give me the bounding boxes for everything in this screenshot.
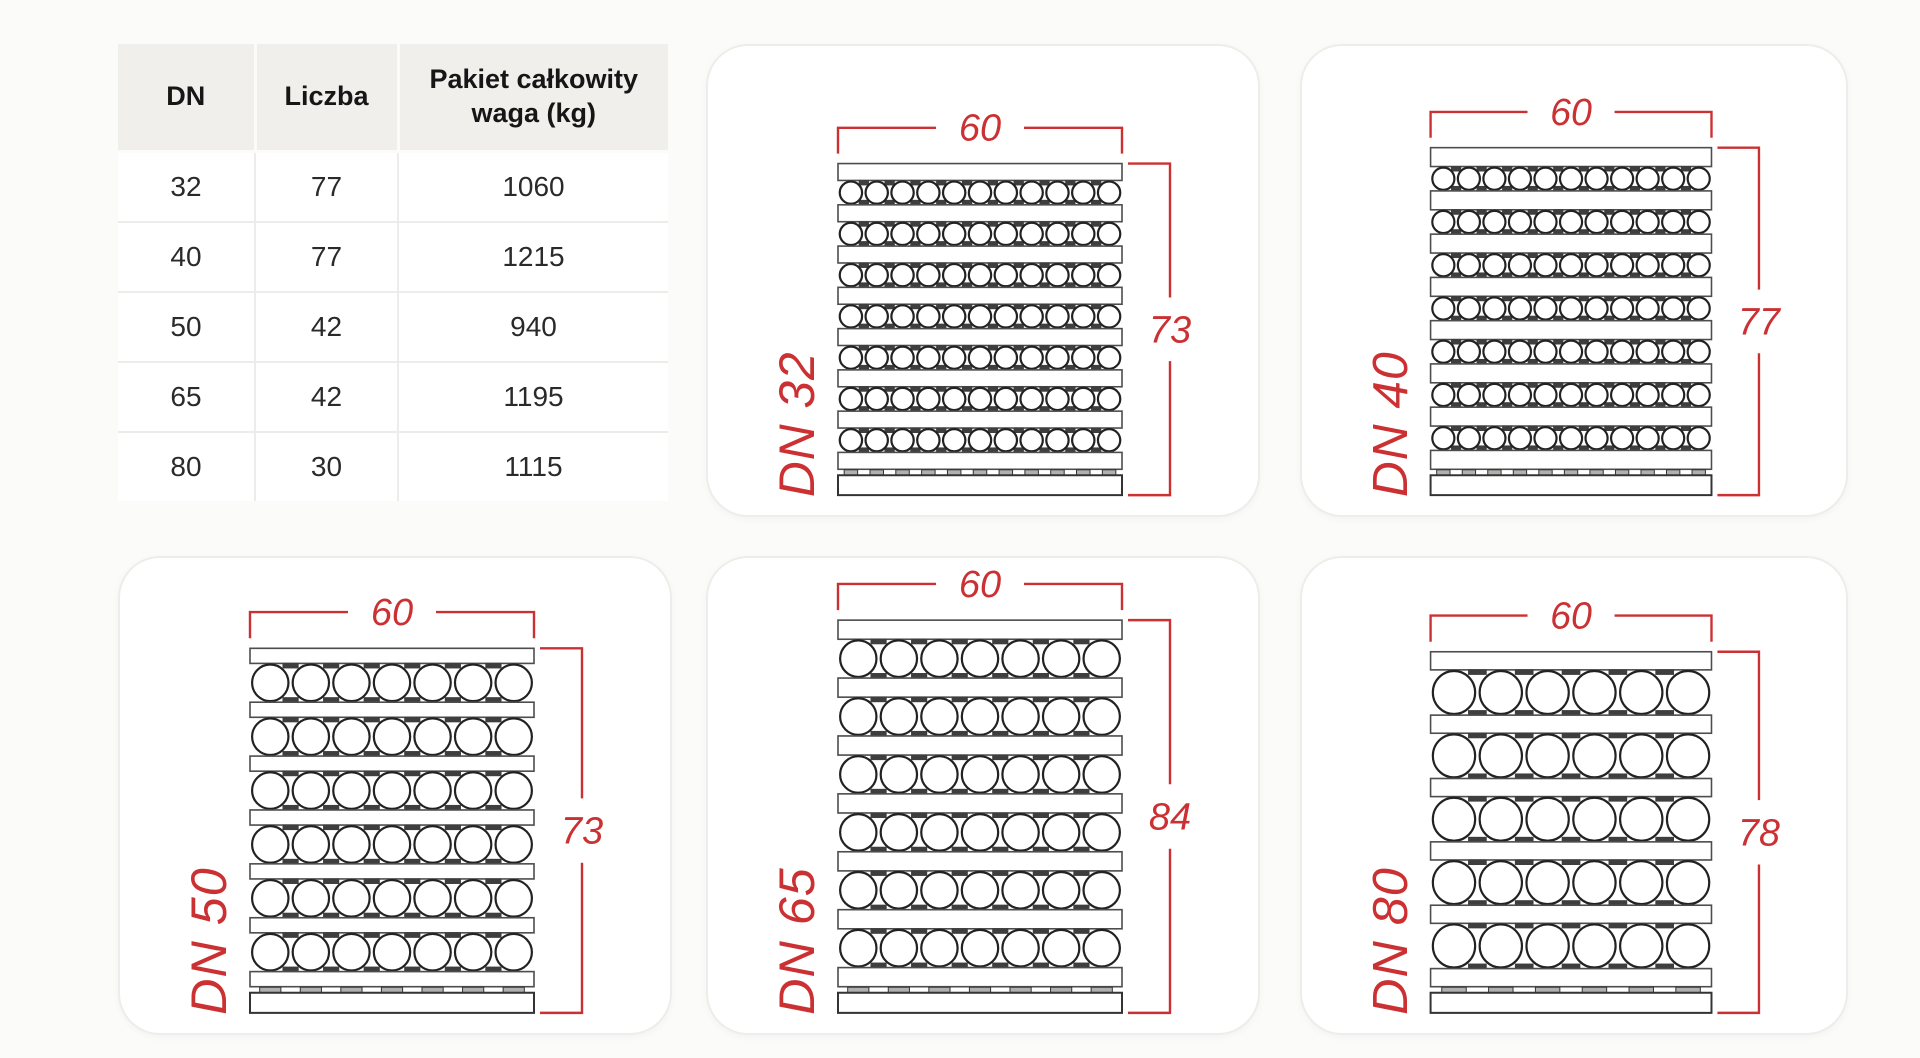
- spacer-tab: [323, 825, 339, 831]
- spacer-tab: [1630, 382, 1640, 387]
- spacer-tab: [1039, 345, 1049, 350]
- height-dimension-value: 77: [1738, 300, 1782, 342]
- spacer-tab: [1091, 304, 1101, 309]
- pipe-circle: [1526, 798, 1568, 841]
- dn-label: DN 80: [1362, 867, 1418, 1015]
- pipe-circle: [1534, 211, 1556, 233]
- pallet-card-dn80: 6078DN 80: [1300, 556, 1848, 1035]
- spacer-tab: [910, 180, 920, 185]
- pipe-circle: [1433, 671, 1475, 714]
- pipe-circle: [866, 347, 888, 369]
- pipe-circle: [1662, 211, 1684, 233]
- pipe-circle: [1534, 254, 1556, 276]
- pipe-circle: [917, 305, 939, 327]
- spacer-tab: [988, 262, 998, 267]
- spacer-tab: [1477, 339, 1487, 344]
- spacer-tab: [404, 878, 420, 884]
- pipe-circle: [1072, 429, 1094, 451]
- spacer-tab: [364, 771, 380, 777]
- plank: [1431, 905, 1712, 923]
- table-row: 32771060: [118, 152, 668, 223]
- plank: [250, 864, 534, 879]
- spacer-tab: [1477, 382, 1487, 387]
- spacer-tab: [1630, 426, 1640, 431]
- plank: [250, 918, 534, 933]
- pipe-circle: [881, 930, 917, 967]
- spacer-tab: [859, 180, 869, 185]
- pipe-circle: [1611, 168, 1633, 190]
- pipe-circle: [840, 756, 876, 793]
- pipe-circle: [374, 880, 410, 917]
- pipe-circle: [1483, 211, 1505, 233]
- pipe-circle: [962, 698, 998, 735]
- pipe-circle: [1458, 427, 1480, 449]
- spacer-tab: [911, 928, 927, 934]
- pipe-circle: [1002, 698, 1038, 735]
- spacer-tab: [1451, 296, 1461, 301]
- pipe-circle: [1002, 930, 1038, 967]
- spacer-tab: [1579, 166, 1589, 171]
- pipe-circle: [962, 756, 998, 793]
- spacer-tab: [1681, 253, 1691, 258]
- spacer-tab: [1468, 923, 1487, 929]
- spacer-tab: [884, 428, 894, 433]
- header-waga: Pakiet całkowity waga (kg): [398, 44, 668, 152]
- spacer-tab: [1073, 928, 1089, 934]
- pipe-circle: [1098, 305, 1120, 327]
- pipe-circle: [455, 772, 491, 809]
- spacer-tab: [1562, 733, 1581, 739]
- pipe-circle: [1586, 297, 1608, 319]
- spacer-tab: [1091, 262, 1101, 267]
- pipe-circle: [1046, 305, 1068, 327]
- pipe-circle: [1084, 756, 1120, 793]
- spacer-tab: [1528, 339, 1538, 344]
- spacer-tab: [323, 771, 339, 777]
- pipe-circle: [1667, 734, 1709, 777]
- spacer-tab: [1502, 253, 1512, 258]
- spacer-tab: [1655, 859, 1674, 865]
- spacer-tab: [1073, 755, 1089, 761]
- spacer-tab: [1065, 180, 1075, 185]
- pipe-circle: [840, 640, 876, 677]
- spacer-tab: [992, 697, 1008, 703]
- spacer-tab: [1562, 669, 1581, 675]
- plank: [838, 329, 1122, 346]
- spacer-tab: [952, 697, 968, 703]
- pipe-circle: [1573, 798, 1615, 841]
- pipe-circle: [917, 264, 939, 286]
- pipe-circle: [1509, 341, 1531, 363]
- spacer-tab: [988, 386, 998, 391]
- pipe-circle: [866, 264, 888, 286]
- pipe-circle: [1534, 427, 1556, 449]
- spacer-tab: [1039, 428, 1049, 433]
- pipe-circle: [414, 718, 450, 755]
- spacer-tab: [1451, 382, 1461, 387]
- pipe-circle: [1480, 924, 1522, 967]
- height-dimension-value: 73: [561, 810, 603, 853]
- cell-waga: 1215: [398, 222, 668, 292]
- pipe-circle: [962, 640, 998, 677]
- pipe-circle: [1534, 297, 1556, 319]
- pipe-circle: [1637, 384, 1659, 406]
- spacer-tab: [1014, 180, 1024, 185]
- spacer-tab: [364, 825, 380, 831]
- pipe-circle: [293, 718, 329, 755]
- spacer-tab: [1609, 669, 1628, 675]
- header-liczba: Liczba: [255, 44, 398, 152]
- pipe-circle: [921, 872, 957, 909]
- plank: [838, 794, 1122, 813]
- pipe-circle: [1620, 861, 1662, 904]
- spacer-tab: [1681, 426, 1691, 431]
- pallet-base-board: [838, 475, 1122, 495]
- spacer-tab: [1579, 382, 1589, 387]
- pipe-circle: [969, 182, 991, 204]
- spacer-tab: [962, 262, 972, 267]
- plank: [1431, 842, 1712, 860]
- spacer-tab: [859, 262, 869, 267]
- spacer-tab: [884, 221, 894, 226]
- spacer-tab: [485, 878, 501, 884]
- pipe-circle: [414, 880, 450, 917]
- pipe-circle: [943, 429, 965, 451]
- spacer-tab: [1579, 426, 1589, 431]
- plank: [250, 756, 534, 771]
- pipe-circle: [1480, 861, 1522, 904]
- pipe-circle: [921, 814, 957, 851]
- spacer-tab: [1655, 426, 1665, 431]
- pipe-circle: [374, 934, 410, 971]
- spacer-tab: [1604, 382, 1614, 387]
- pipe-circle: [891, 429, 913, 451]
- pipe-circle: [840, 264, 862, 286]
- spacer-tab: [1065, 262, 1075, 267]
- pipe-circle: [1688, 168, 1710, 190]
- pipe-circle: [1611, 254, 1633, 276]
- spacer-tab: [1562, 796, 1581, 802]
- pallet-card-dn50: 6073DN 50: [118, 556, 672, 1035]
- cell-liczba: 30: [255, 432, 398, 501]
- spacer-tab: [404, 825, 420, 831]
- table-body: 327710604077121550429406542119580301115: [118, 152, 668, 502]
- cell-liczba: 42: [255, 292, 398, 362]
- pipe-circle: [1586, 384, 1608, 406]
- pipe-circle: [1483, 341, 1505, 363]
- pipe-circle: [921, 756, 957, 793]
- pipe-circle: [943, 264, 965, 286]
- spacer-tab: [910, 428, 920, 433]
- pipe-circle: [995, 347, 1017, 369]
- width-dimension-value: 60: [371, 591, 413, 634]
- plank: [1431, 778, 1712, 796]
- width-dimension-value: 60: [1550, 91, 1592, 133]
- pipe-circle: [1509, 297, 1531, 319]
- pipe-circle: [1020, 305, 1042, 327]
- cell-dn: 50: [118, 292, 255, 362]
- pipe-circle: [1662, 168, 1684, 190]
- pipe-circle: [995, 429, 1017, 451]
- pipe-circle: [333, 718, 369, 755]
- pipe-circle: [1002, 814, 1038, 851]
- spacer-tab: [1630, 296, 1640, 301]
- pipe-circle: [414, 826, 450, 863]
- spacer-tab: [1528, 253, 1538, 258]
- spacer-tab: [1039, 262, 1049, 267]
- pipe-circle: [1586, 211, 1608, 233]
- pipe-circle: [891, 264, 913, 286]
- spacer-tab: [1604, 253, 1614, 258]
- dn-label: DN 65: [769, 867, 825, 1015]
- plank: [838, 246, 1122, 263]
- pipe-circle: [995, 223, 1017, 245]
- pipe-circle: [1020, 388, 1042, 410]
- spacer-tab: [884, 262, 894, 267]
- cell-dn: 40: [118, 222, 255, 292]
- spacer-tab: [1515, 669, 1534, 675]
- spacer-tab: [364, 878, 380, 884]
- pipe-circle: [1534, 341, 1556, 363]
- pipe-circle: [1620, 671, 1662, 714]
- plank: [250, 648, 534, 663]
- spacer-tab: [884, 304, 894, 309]
- plank: [1431, 407, 1712, 426]
- pipe-circle: [1667, 924, 1709, 967]
- spacer-tab: [1553, 253, 1563, 258]
- pipe-circle: [969, 305, 991, 327]
- pipe-circle: [840, 305, 862, 327]
- spacer-tab: [1477, 209, 1487, 214]
- pipe-circle: [943, 388, 965, 410]
- spacer-tab: [910, 345, 920, 350]
- spacer-tab: [485, 825, 501, 831]
- spacer-tab: [1681, 209, 1691, 214]
- plank: [838, 678, 1122, 697]
- spacer-tab: [1604, 339, 1614, 344]
- pipe-circle: [496, 826, 532, 863]
- pipe-circle: [333, 934, 369, 971]
- spacer-tab: [282, 825, 298, 831]
- spacer-tab: [911, 870, 927, 876]
- pipe-circle: [455, 718, 491, 755]
- pipe-circle: [1458, 211, 1480, 233]
- spacer-tab: [1091, 345, 1101, 350]
- pipe-circle: [1043, 930, 1079, 967]
- pipe-circle: [1046, 264, 1068, 286]
- pipe-circle: [995, 264, 1017, 286]
- pipe-circle: [891, 182, 913, 204]
- pipe-circle: [1432, 427, 1454, 449]
- pipe-circle: [1432, 254, 1454, 276]
- spacer-tab: [962, 386, 972, 391]
- spacer-tab: [1091, 386, 1101, 391]
- pipe-circle: [840, 388, 862, 410]
- pipe-circle: [1002, 640, 1038, 677]
- pallet-card-dn65: 6084DN 65: [706, 556, 1260, 1035]
- spacer-tab: [870, 639, 886, 645]
- spacer-tab: [952, 870, 968, 876]
- pipe-circle: [1084, 930, 1120, 967]
- spacer-tab: [485, 932, 501, 938]
- dn-label: DN 32: [769, 351, 825, 497]
- spacer-tab: [1553, 339, 1563, 344]
- pipe-circle: [1688, 341, 1710, 363]
- spacer-tab: [911, 697, 927, 703]
- cell-liczba: 77: [255, 152, 398, 223]
- table-row: 65421195: [118, 362, 668, 432]
- spacer-tab: [282, 878, 298, 884]
- pipe-circle: [1667, 861, 1709, 904]
- spacer-tab: [1553, 296, 1563, 301]
- pipe-circle: [455, 880, 491, 917]
- pipe-circle: [866, 223, 888, 245]
- pipe-circle: [1637, 168, 1659, 190]
- spacer-tab: [992, 870, 1008, 876]
- pipe-circle: [496, 934, 532, 971]
- pipe-circle: [455, 934, 491, 971]
- spacer-tab: [1468, 859, 1487, 865]
- pipe-circle: [840, 698, 876, 735]
- spacer-tab: [1609, 859, 1628, 865]
- spacer-tab: [992, 639, 1008, 645]
- pipe-circle: [1688, 427, 1710, 449]
- spacer-tab: [1655, 796, 1674, 802]
- spacer-tab: [962, 304, 972, 309]
- pipe-circle: [1688, 254, 1710, 276]
- pipe-circle: [1043, 872, 1079, 909]
- pipe-circle: [1560, 211, 1582, 233]
- pipe-circle: [1662, 341, 1684, 363]
- spacer-tab: [1073, 812, 1089, 818]
- pipe-circle: [1432, 211, 1454, 233]
- pipe-circle: [1586, 254, 1608, 276]
- spacer-tab: [992, 755, 1008, 761]
- spacer-tab: [1033, 697, 1049, 703]
- spacer-tab: [1091, 428, 1101, 433]
- pipe-circle: [1433, 798, 1475, 841]
- pipe-circle: [293, 826, 329, 863]
- cell-dn: 65: [118, 362, 255, 432]
- spacer-tab: [1065, 345, 1075, 350]
- pipe-circle: [1432, 297, 1454, 319]
- pipe-circle: [995, 388, 1017, 410]
- pipe-circle: [1560, 168, 1582, 190]
- pipe-circle: [496, 718, 532, 755]
- spacer-tab: [364, 932, 380, 938]
- pipe-circle: [1560, 341, 1582, 363]
- plank: [250, 702, 534, 717]
- spacer-tab: [1655, 296, 1665, 301]
- spacer-tab: [445, 932, 461, 938]
- pipe-circle: [1046, 347, 1068, 369]
- spacer-tab: [1655, 382, 1665, 387]
- pipe-circle: [1637, 341, 1659, 363]
- pipe-circle: [1534, 384, 1556, 406]
- pipe-circle: [1020, 223, 1042, 245]
- pipe-circle: [1020, 264, 1042, 286]
- pipe-circle: [455, 665, 491, 702]
- spacer-tab: [1502, 209, 1512, 214]
- pipe-circle: [1688, 297, 1710, 319]
- spacer-tab: [1033, 755, 1049, 761]
- spacer-tab: [445, 771, 461, 777]
- plank: [838, 452, 1122, 469]
- pallet-base-board: [250, 993, 534, 1013]
- spacer-tab: [323, 663, 339, 669]
- pipe-circle: [1586, 427, 1608, 449]
- spacer-tab: [1477, 166, 1487, 171]
- spacer-tab: [910, 386, 920, 391]
- spacer-tab: [870, 812, 886, 818]
- spacer-tab: [1033, 870, 1049, 876]
- spacer-tab: [323, 932, 339, 938]
- spacer-tab: [1655, 923, 1674, 929]
- cell-waga: 1115: [398, 432, 668, 501]
- pipe-circle: [374, 826, 410, 863]
- pipe-circle: [1637, 211, 1659, 233]
- pipe-circle: [293, 772, 329, 809]
- spacer-tab: [1609, 923, 1628, 929]
- pipe-circle: [293, 665, 329, 702]
- spacer-tab: [445, 878, 461, 884]
- pipe-circle: [1433, 734, 1475, 777]
- plank: [838, 736, 1122, 755]
- pipe-circle: [1573, 671, 1615, 714]
- pallet-base-board: [1431, 475, 1712, 495]
- spacer-tab: [870, 870, 886, 876]
- spacer-tab: [911, 639, 927, 645]
- pipe-circle: [1560, 254, 1582, 276]
- spacer-tab: [1579, 253, 1589, 258]
- table-row: 80301115: [118, 432, 668, 501]
- spacer-tab: [1630, 209, 1640, 214]
- spacer-tab: [936, 304, 946, 309]
- plank: [1431, 364, 1712, 383]
- pipe-circle: [1611, 384, 1633, 406]
- pipe-circle: [969, 388, 991, 410]
- plank: [838, 370, 1122, 387]
- spacer-tab: [1014, 262, 1024, 267]
- pipe-circle: [995, 305, 1017, 327]
- pipe-circle: [1509, 211, 1531, 233]
- spacer-tab: [910, 221, 920, 226]
- spacer-tab: [1528, 426, 1538, 431]
- pipe-circle: [1620, 734, 1662, 777]
- spacer-tab: [445, 663, 461, 669]
- cell-waga: 1195: [398, 362, 668, 432]
- pipe-circle: [333, 665, 369, 702]
- pipe-circle: [1483, 254, 1505, 276]
- plank: [838, 205, 1122, 222]
- pipe-circle: [1560, 427, 1582, 449]
- spacer-tab: [1033, 928, 1049, 934]
- spacer-tab: [859, 428, 869, 433]
- spacer-tab: [1065, 221, 1075, 226]
- pipe-circle: [1432, 341, 1454, 363]
- pipe-circle: [1483, 297, 1505, 319]
- pallet-base-board: [838, 993, 1122, 1013]
- spacer-tab: [992, 928, 1008, 934]
- pipe-circle: [1433, 924, 1475, 967]
- packing-table-container: DN Liczba Pakiet całkowity waga (kg) 327…: [118, 44, 668, 501]
- pipe-circle: [1084, 640, 1120, 677]
- pipe-circle: [1098, 223, 1120, 245]
- cell-liczba: 77: [255, 222, 398, 292]
- spacer-tab: [1014, 428, 1024, 433]
- spacer-tab: [884, 345, 894, 350]
- pipe-circle: [866, 388, 888, 410]
